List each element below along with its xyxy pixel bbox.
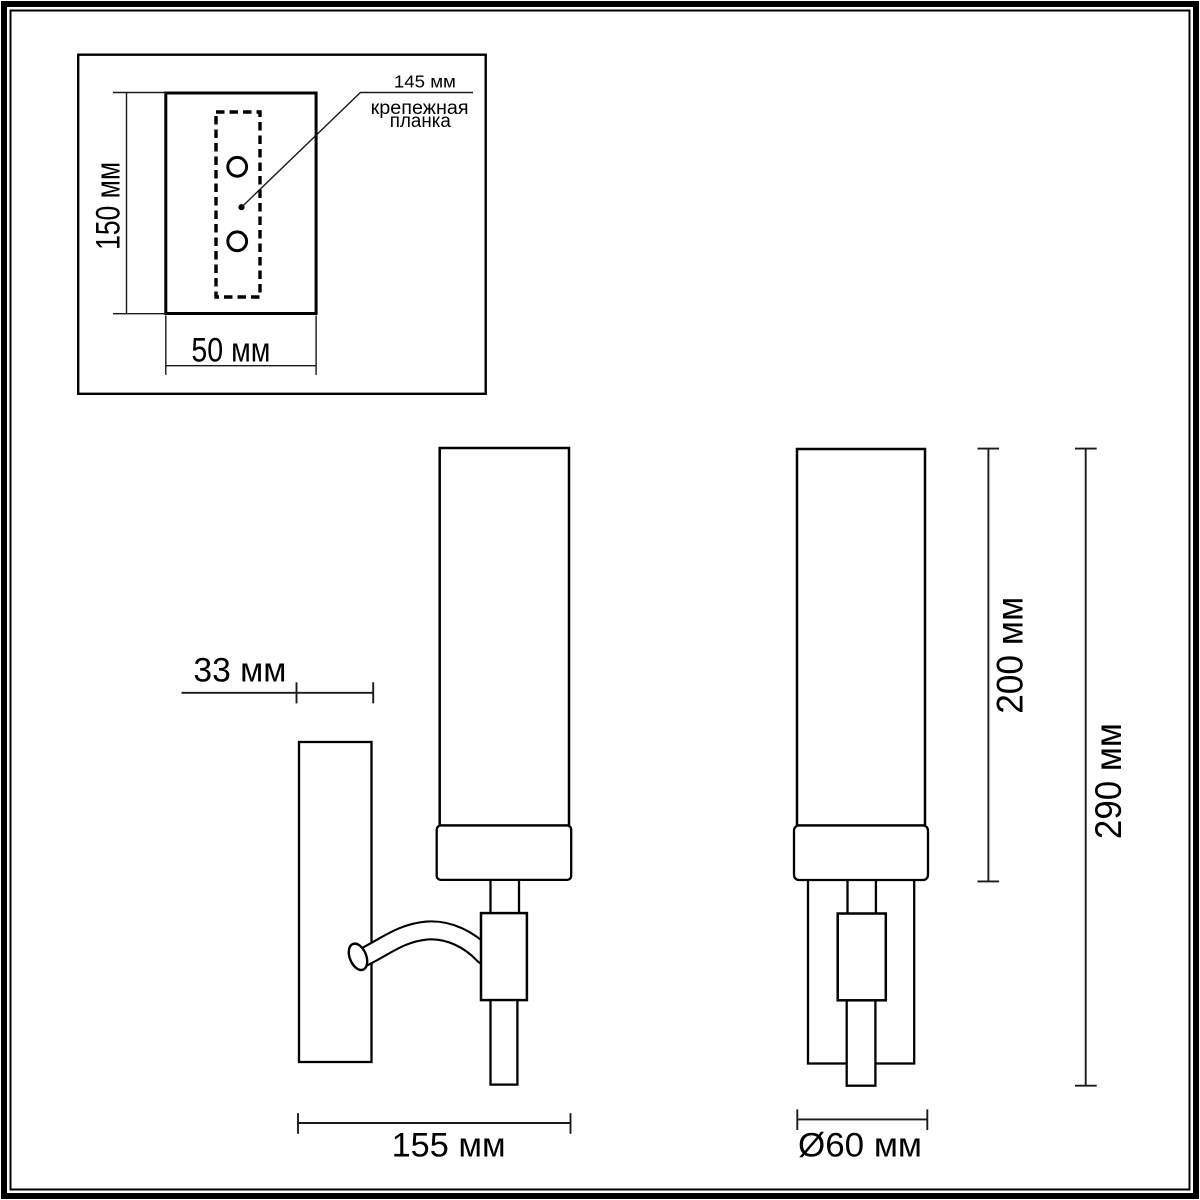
svg-text:290 мм: 290 мм — [1088, 723, 1129, 839]
svg-text:155 мм: 155 мм — [392, 1127, 506, 1165]
svg-text:145 мм: 145 мм — [394, 72, 456, 92]
svg-text:150 мм: 150 мм — [89, 162, 127, 250]
svg-text:Ø60 мм: Ø60 мм — [798, 1127, 922, 1165]
svg-text:33 мм: 33 мм — [193, 652, 286, 690]
svg-text:200 мм: 200 мм — [990, 597, 1031, 714]
svg-text:планка: планка — [390, 111, 451, 132]
svg-text:50 мм: 50 мм — [191, 332, 270, 370]
